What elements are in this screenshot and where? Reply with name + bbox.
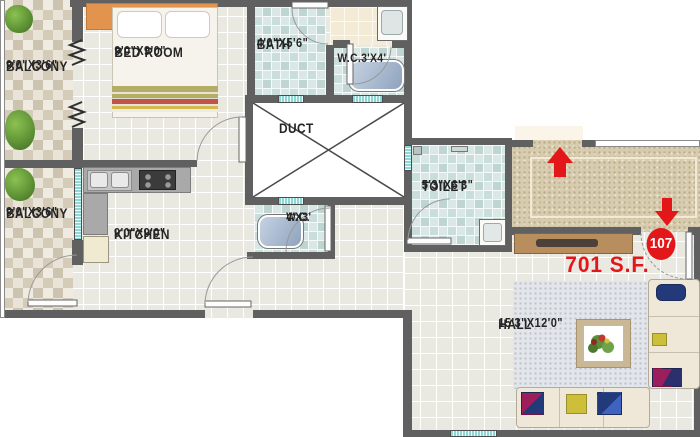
stove xyxy=(139,170,176,190)
wall xyxy=(505,138,512,245)
wall xyxy=(245,95,253,205)
duct-shaft xyxy=(253,103,404,197)
window-hall xyxy=(450,430,497,437)
sink-basin xyxy=(90,172,108,188)
landing-strip xyxy=(515,126,583,140)
wall xyxy=(83,160,197,167)
entry-cabinet-handle xyxy=(536,239,598,247)
cushion xyxy=(656,284,686,301)
wall xyxy=(328,204,335,259)
bed-blanket xyxy=(112,86,218,112)
washbasin-bowl xyxy=(381,10,403,35)
cushion xyxy=(566,394,587,414)
cushion xyxy=(521,392,544,415)
window-wc-duct xyxy=(352,95,383,103)
floor-plan: BALCONY 9'0"X3'6" BED ROOM 9'0"X9'0" BAT… xyxy=(0,0,700,437)
sink-basin xyxy=(111,172,129,188)
area-label: 701 S.F. xyxy=(565,252,689,278)
wall xyxy=(326,45,334,98)
towel-rail xyxy=(451,146,468,152)
wall xyxy=(688,227,700,235)
bath-floor xyxy=(253,7,326,98)
toilet-washbasin-bowl xyxy=(483,223,502,242)
wall xyxy=(403,310,412,437)
window-wcmid-duct xyxy=(278,197,304,205)
wall xyxy=(404,138,512,145)
pillow xyxy=(117,11,162,38)
window-toilet-duct xyxy=(404,145,412,171)
wall xyxy=(72,0,83,42)
wall xyxy=(247,252,335,259)
wall xyxy=(72,240,83,265)
wall xyxy=(0,160,83,168)
plant xyxy=(5,168,35,201)
kitchen-counter-side xyxy=(83,193,108,235)
wall xyxy=(403,430,700,437)
stair-railing xyxy=(595,140,700,147)
cushion xyxy=(652,333,667,346)
cushion xyxy=(597,392,622,415)
wall xyxy=(253,310,412,318)
window-bath-duct xyxy=(278,95,304,103)
shower-head xyxy=(413,146,422,155)
pillow xyxy=(165,11,210,38)
wall xyxy=(247,0,255,97)
balcony-railing xyxy=(0,0,5,318)
fridge xyxy=(83,236,109,263)
wall xyxy=(333,40,350,48)
cushion xyxy=(652,368,682,387)
wall xyxy=(404,245,512,252)
plant xyxy=(5,5,33,33)
coffee-table-top xyxy=(583,325,624,362)
wall xyxy=(582,140,596,147)
corridor-inset-line xyxy=(530,157,697,218)
wall xyxy=(0,310,205,318)
plant xyxy=(5,110,35,150)
window-balcony-kitchen xyxy=(74,168,82,240)
